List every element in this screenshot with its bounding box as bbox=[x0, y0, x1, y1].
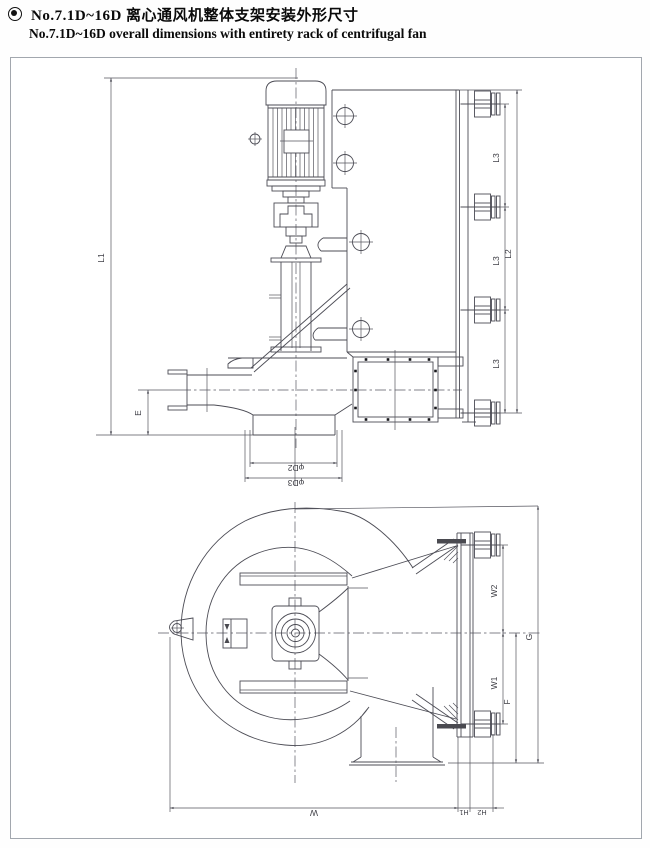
rail-clamp bbox=[461, 91, 501, 117]
side-view: L1 E φD2 φD3 bbox=[96, 68, 522, 488]
dim-label-l1: L1 bbox=[96, 253, 106, 263]
rail-clamp bbox=[461, 297, 501, 323]
rail-clamp bbox=[461, 532, 501, 558]
dim-label-f: F bbox=[502, 699, 512, 704]
rack-side bbox=[332, 90, 501, 426]
nameplate-box bbox=[223, 619, 247, 648]
lower-bracket-arm bbox=[313, 328, 347, 340]
dim-label-l3-c: L3 bbox=[491, 359, 501, 369]
bottom-angle-bar bbox=[437, 724, 466, 729]
inlet-funnel bbox=[350, 539, 466, 729]
dim-label-w: W bbox=[310, 808, 318, 818]
plate-bolthole-icon bbox=[349, 230, 373, 254]
dim-label-e: E bbox=[133, 410, 143, 416]
rail-clamp bbox=[461, 194, 501, 220]
dim-label-l3-a: L3 bbox=[491, 153, 501, 163]
dim-label-l3-b: L3 bbox=[491, 256, 501, 266]
dim-label-w1: W1 bbox=[489, 676, 499, 689]
front-view-dimensions: W2 W1 F G W H1 H2 bbox=[170, 506, 544, 818]
dim-label-d2: φD2 bbox=[288, 463, 305, 473]
upper-bracket-arm bbox=[318, 238, 347, 251]
volute-scroll bbox=[181, 508, 413, 745]
rail-clamp bbox=[461, 711, 501, 737]
outlet-duct bbox=[349, 687, 445, 782]
technical-drawing: L1 E φD2 φD3 bbox=[0, 0, 650, 848]
coupling-and-bearing bbox=[228, 191, 350, 372]
plate-bolthole-icon bbox=[333, 151, 357, 175]
front-view: W2 W1 F G W H1 H2 bbox=[158, 502, 544, 818]
dim-label-h2: H2 bbox=[477, 808, 486, 817]
drawing-page: No.7.1D~16D 离心通风机整体支架安装外形尺寸 No.7.1D~16D … bbox=[0, 0, 650, 848]
dim-label-h1: H1 bbox=[459, 808, 468, 817]
top-angle-bar bbox=[437, 539, 466, 544]
dim-label-d3: φD3 bbox=[288, 478, 305, 488]
dim-label-g: G bbox=[524, 634, 534, 641]
motor bbox=[248, 81, 326, 191]
plate-bolthole-icon bbox=[349, 317, 373, 341]
dim-label-w2: W2 bbox=[489, 584, 499, 597]
foot-pad bbox=[228, 358, 253, 368]
plate-bolthole-icon bbox=[333, 104, 357, 128]
inlet-and-base bbox=[168, 358, 352, 435]
terminal-box bbox=[284, 130, 309, 153]
dim-label-l2: L2 bbox=[503, 249, 513, 259]
rack-front bbox=[457, 532, 501, 737]
flange-bolts bbox=[354, 358, 437, 421]
diagonal-brace bbox=[251, 284, 347, 368]
